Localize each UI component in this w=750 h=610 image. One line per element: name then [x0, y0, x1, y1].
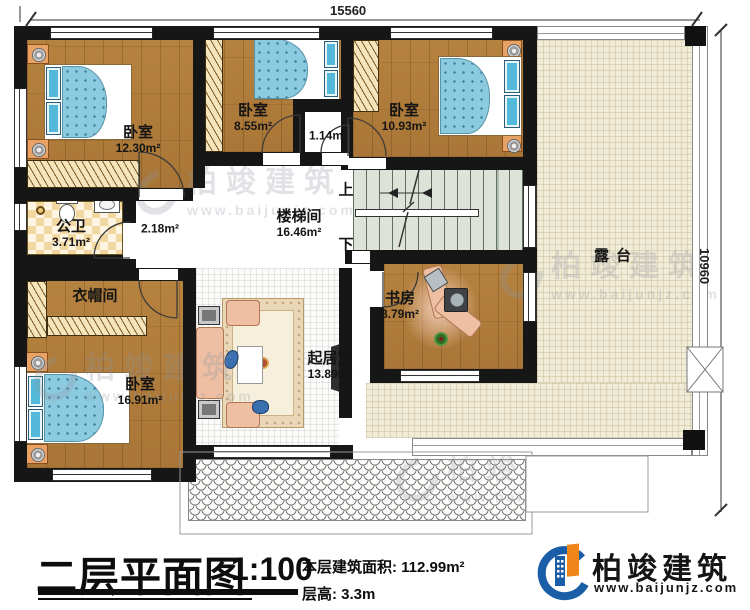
- terrace-rail-bottom: [412, 438, 692, 456]
- side-table: [198, 306, 220, 325]
- title-underline: [38, 589, 298, 595]
- nightstand: [502, 135, 522, 152]
- window: [213, 27, 320, 39]
- window: [14, 366, 27, 442]
- window: [213, 446, 331, 458]
- wardrobe-cloak-mid: [47, 316, 147, 336]
- label-bedroom-bottom-left: 卧室 16.91m²: [118, 377, 163, 407]
- floor-area-text: 本层建筑面积: 112.99m²: [302, 556, 465, 577]
- floor-terrace: [537, 40, 692, 438]
- floor-height-text: 层高: 3.3m: [302, 583, 375, 604]
- terrace-column: [685, 26, 706, 46]
- brand-logo-icon: [536, 540, 590, 604]
- plant: [434, 332, 448, 346]
- label-hall: 2.18m²: [141, 222, 179, 235]
- nightstand: [27, 44, 49, 64]
- label-bathroom: 公卫 3.71m²: [52, 219, 90, 249]
- computer-monitor: [444, 288, 468, 312]
- window: [14, 88, 27, 168]
- bed-pillow: [46, 102, 61, 135]
- person-figure: [252, 400, 269, 414]
- label-stairwell: 楼梯间 16.46m²: [276, 209, 321, 239]
- label-small-closet: 1.14m²: [309, 129, 347, 142]
- window: [523, 272, 537, 322]
- dimension-right: 10960: [697, 248, 712, 284]
- window: [400, 370, 480, 382]
- floor-terrace-south: [366, 383, 692, 438]
- label-living: 起居室 13.89m²: [307, 351, 352, 381]
- brand-website: www.baijunjz.com: [594, 580, 738, 595]
- window: [52, 469, 152, 481]
- window: [50, 27, 153, 39]
- wall: [345, 250, 537, 264]
- label-stairs-down: 下: [338, 238, 353, 255]
- window: [523, 185, 537, 248]
- title-underline-thin: [38, 598, 252, 600]
- door-opening: [123, 223, 136, 259]
- door-opening: [348, 158, 386, 169]
- nightstand: [27, 139, 49, 159]
- pendant-light: [36, 206, 45, 215]
- wall: [341, 26, 353, 170]
- label-bedroom-top-mid: 卧室 8.55m²: [234, 103, 272, 133]
- wall: [339, 268, 352, 418]
- label-terrace: 露台: [594, 249, 638, 266]
- door-opening: [322, 153, 349, 165]
- terrace-column: [683, 430, 705, 450]
- watermark: 柏竣建筑www.baijunjz.com: [398, 455, 616, 505]
- window: [14, 203, 27, 231]
- stair-handrail: [355, 209, 479, 217]
- terrace-rail-right: [692, 26, 708, 456]
- label-bedroom-top-left: 卧室 12.30m²: [116, 125, 161, 155]
- bed-pillow: [324, 41, 338, 68]
- bed-pillow: [504, 60, 520, 93]
- bed-pillow: [324, 70, 338, 97]
- wardrobe-bedroom-tl: [27, 160, 140, 188]
- label-stairs-up: 上: [338, 183, 353, 200]
- bed-pillow: [28, 409, 43, 440]
- nightstand: [502, 40, 522, 57]
- armchair: [226, 300, 260, 326]
- door-opening: [139, 189, 183, 200]
- terrace-rail-top: [537, 26, 685, 40]
- label-cloakroom: 衣帽间: [72, 289, 117, 306]
- label-bedroom-top-right: 卧室 10.93m²: [382, 103, 427, 133]
- wardrobe-cloak-left: [27, 281, 47, 338]
- wall: [14, 255, 136, 268]
- drawing-scale: 1:100: [231, 551, 313, 588]
- window: [390, 27, 493, 39]
- wardrobe-bedroom-tr: [353, 40, 379, 112]
- door-opening: [263, 153, 300, 165]
- door-opening: [139, 269, 178, 280]
- floor-plan-drawing: 15560 10960 卧室 12.30m² 卧室 8.55m² 卧室 10.9…: [0, 0, 750, 610]
- nightstand: [26, 444, 48, 464]
- bed-pillow: [504, 95, 520, 128]
- wardrobe-bedroom-tm: [205, 38, 223, 152]
- dimension-top: 15560: [330, 3, 366, 18]
- door-opening: [352, 251, 370, 263]
- label-study: 书房 8.79m²: [381, 291, 419, 321]
- bed-pillow: [46, 67, 61, 100]
